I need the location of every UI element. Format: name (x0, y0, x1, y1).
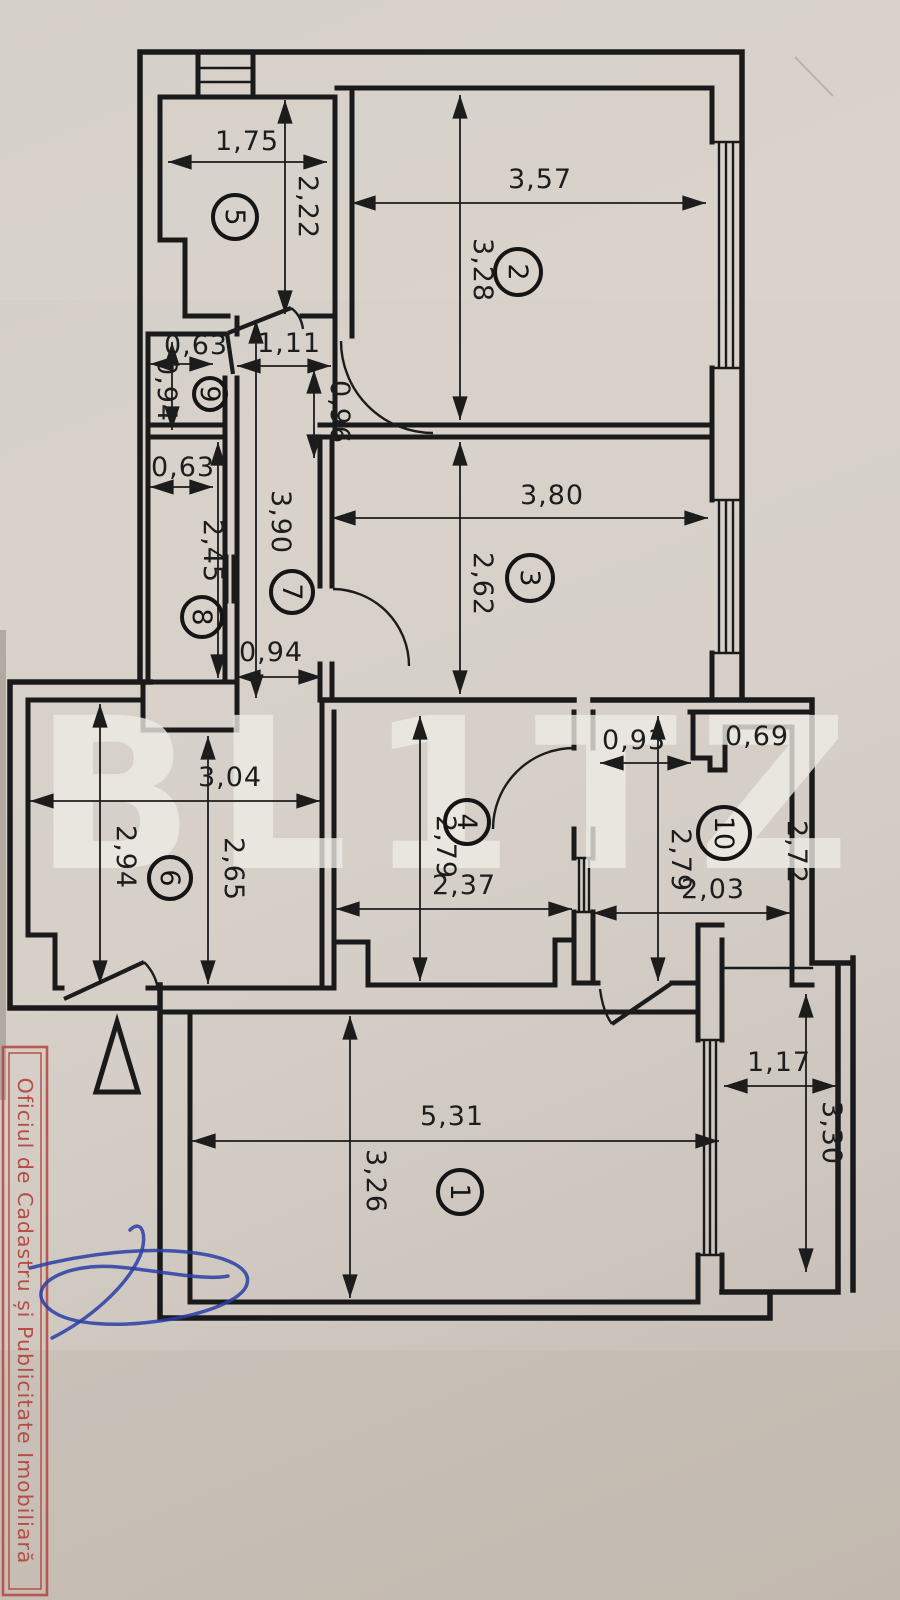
room-7-number: 7 (276, 583, 307, 600)
dim-room8-width: 0,63 (151, 452, 215, 483)
scanned-floor-plan-page: BL1TZ 1,75 2,22 3,57 3,28 0,63 (0, 0, 900, 1600)
dim-room9-width: 0,63 (164, 330, 228, 361)
room-6-number: 6 (154, 869, 185, 886)
stamp-text: Oficiul de Cadastru și Publicitate Imobi… (13, 1078, 37, 1565)
dim-room10-niche2: 0,69 (725, 721, 789, 752)
dim-hall-width: 1,11 (257, 328, 321, 359)
paper-highlight (0, 0, 900, 300)
dim-room3-width: 3,80 (520, 480, 584, 511)
room-2-number: 2 (502, 263, 533, 280)
paper-shadow (0, 1350, 900, 1600)
dim-room8-height: 2,45 (197, 519, 228, 583)
dim-balcony-height: 3,30 (816, 1101, 847, 1165)
entrance-arrow-triangle (96, 1022, 138, 1092)
door-arc-room1 (600, 989, 612, 1024)
dim-room10-height2: 2,72 (781, 820, 812, 884)
room-5-number: 5 (219, 208, 250, 225)
door-arc-room3 (333, 589, 409, 666)
cadastre-stamp: Oficiul de Cadastru și Publicitate Imobi… (3, 1047, 47, 1595)
dim-room3-height: 2,62 (467, 552, 498, 616)
dim-balcony-width: 1,17 (747, 1047, 811, 1078)
dim-room7-width: 0,94 (239, 637, 303, 668)
dim-room1-height: 3,26 (360, 1149, 391, 1213)
room-8-number: 8 (186, 608, 217, 625)
dim-room10-width: 2,03 (681, 874, 745, 905)
dim-room6-height2: 2,65 (218, 837, 249, 901)
dim-room9-height: 0,94 (151, 358, 182, 422)
dim-room1-width: 5,31 (420, 1101, 484, 1132)
door-leaf-room1 (612, 983, 672, 1024)
room-3-number: 3 (514, 569, 545, 586)
signature-stroke (52, 1226, 144, 1338)
room-10-number: 10 (708, 816, 739, 850)
room-9-number: 9 (194, 385, 225, 402)
room-4-number: 4 (451, 813, 482, 830)
dim-room6-width: 3,04 (198, 762, 262, 793)
dim-room7-height: 3,90 (265, 490, 296, 554)
dim-room5-height: 2,22 (292, 175, 323, 239)
dim-hall-height: 0,96 (324, 380, 355, 444)
dim-room5-width: 1,75 (215, 126, 279, 157)
room-1-number: 1 (444, 1183, 475, 1200)
floor-plan-drawing: BL1TZ 1,75 2,22 3,57 3,28 0,63 (0, 0, 900, 1600)
dim-room6-height1: 2,94 (110, 825, 141, 889)
paper-edge-shadow (0, 630, 6, 1100)
pen-signature (30, 1226, 248, 1338)
door-leaf-entrance (64, 962, 144, 999)
dim-room4-width: 2,37 (432, 870, 496, 901)
dim-room10-niche1: 0,93 (602, 725, 666, 756)
dim-room2-width: 3,57 (508, 164, 572, 195)
door-arc-room5 (291, 308, 303, 329)
